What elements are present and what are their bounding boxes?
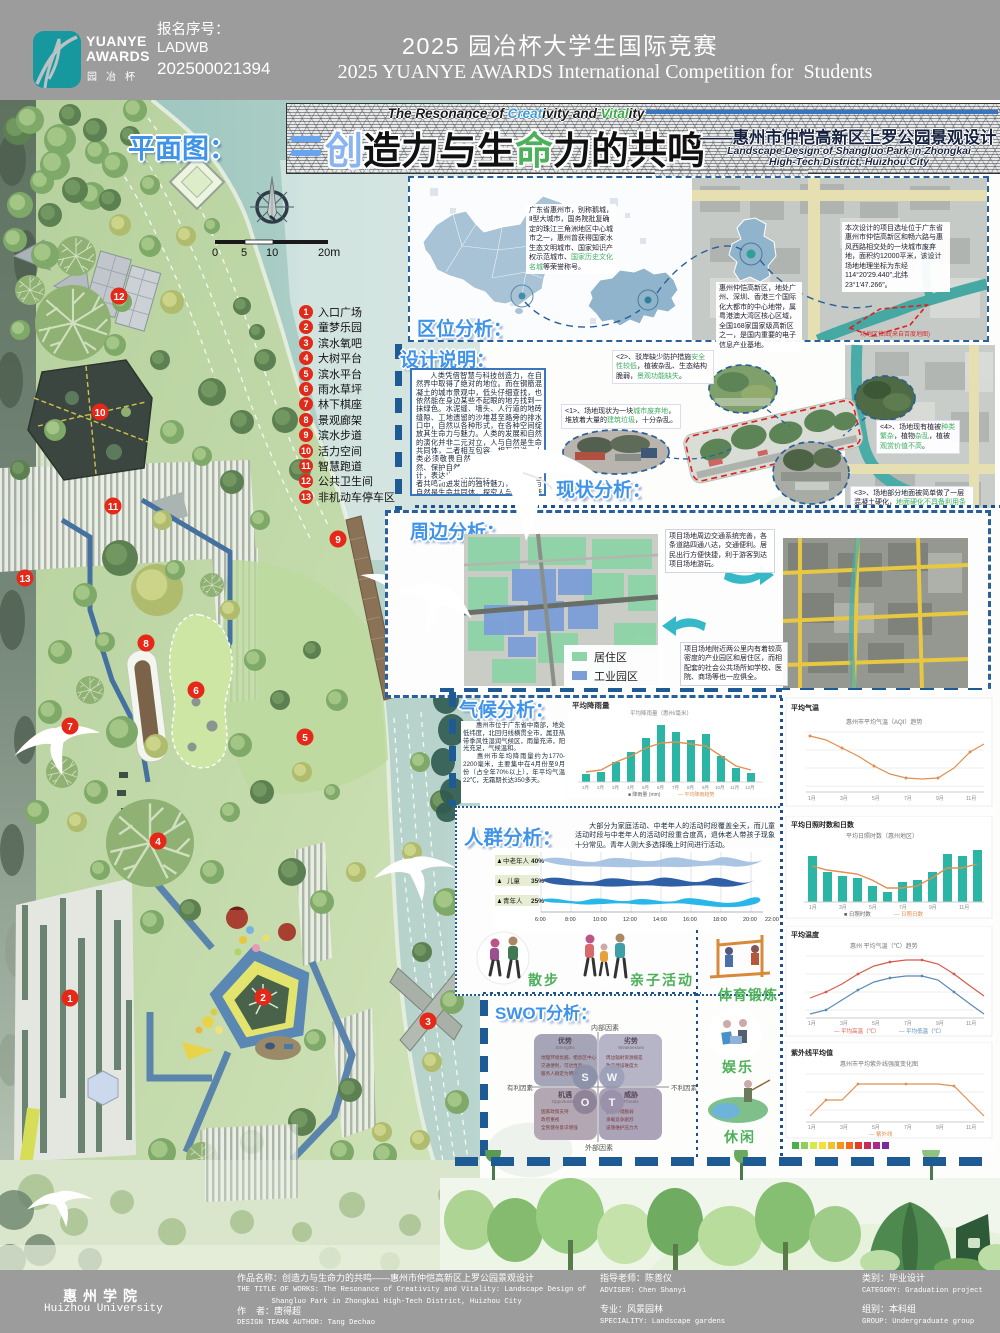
svg-text:平均日照时数（惠州地区）: 平均日照时数（惠州地区） <box>846 832 918 840</box>
svg-text:5: 5 <box>303 369 308 379</box>
svg-text:平均日照时数和日数: 平均日照时数和日数 <box>791 820 855 829</box>
svg-text:Weaknesses: Weaknesses <box>618 1045 644 1050</box>
svg-text:平均气温: 平均气温 <box>791 703 819 712</box>
svg-text:2: 2 <box>303 322 308 332</box>
svg-text:W: W <box>607 1072 618 1084</box>
svg-text:♟: ♟ <box>497 898 502 905</box>
svg-text:散步: 散步 <box>528 972 560 988</box>
svg-text:7: 7 <box>303 399 308 409</box>
svg-text:5: 5 <box>302 733 308 744</box>
svg-text:8: 8 <box>303 415 308 425</box>
svg-text:3月: 3月 <box>840 1021 848 1027</box>
svg-text:— 平均高温（℃）: — 平均高温（℃） <box>834 1027 880 1035</box>
svg-text:平均降雨量（惠州/毫米）: 平均降雨量（惠州/毫米） <box>630 709 692 717</box>
svg-text:7: 7 <box>67 722 73 733</box>
svg-text:平均温度: 平均温度 <box>791 930 820 939</box>
svg-text:7月: 7月 <box>904 1125 912 1131</box>
svg-text:承载竞争剧烈: 承载竞争剧烈 <box>606 1116 634 1123</box>
svg-text:5月: 5月 <box>872 796 880 802</box>
svg-text:11月: 11月 <box>966 1021 976 1027</box>
svg-text:优势: 优势 <box>558 1036 572 1045</box>
svg-text:休闲: 休闲 <box>723 1129 756 1145</box>
svg-text:亲子活动: 亲子活动 <box>630 972 694 988</box>
svg-text:9月: 9月 <box>936 796 944 802</box>
svg-text:机遇: 机遇 <box>558 1090 572 1099</box>
svg-text:中老年人: 中老年人 <box>503 856 530 865</box>
svg-text:— 平均降雨趋势: — 平均降雨趋势 <box>678 791 714 798</box>
svg-text:场地区位图(来自百度地图): 场地区位图(来自百度地图) <box>860 330 930 338</box>
svg-text:林下棋座: 林下棋座 <box>318 397 362 411</box>
svg-text:非机动车停车区: 非机动车停车区 <box>318 490 395 504</box>
svg-text:1: 1 <box>67 994 73 1005</box>
svg-text:有利因素: 有利因素 <box>507 1083 534 1092</box>
svg-text:40%: 40% <box>531 858 544 865</box>
svg-text:滨水步道: 滨水步道 <box>318 428 362 442</box>
svg-text:公共卫生间: 公共卫生间 <box>318 474 373 488</box>
svg-text:12: 12 <box>301 476 311 486</box>
svg-text:童梦乐园: 童梦乐园 <box>318 320 362 334</box>
svg-text:惠州市平均气温（AQI）趋势: 惠州市平均气温（AQI）趋势 <box>846 718 922 726</box>
svg-text:周边辐射资源援是: 周边辐射资源援是 <box>606 1054 643 1061</box>
svg-text:地理环境优越、栖息区中心: 地理环境优越、栖息区中心 <box>541 1054 597 1061</box>
svg-text:Strengths: Strengths <box>555 1045 575 1050</box>
svg-text:6: 6 <box>193 686 199 697</box>
svg-text:3月: 3月 <box>840 796 848 802</box>
svg-text:12:00: 12:00 <box>623 917 637 923</box>
svg-text:居住区: 居住区 <box>594 650 627 664</box>
svg-text:10: 10 <box>94 408 106 419</box>
svg-text:5月: 5月 <box>872 1125 880 1131</box>
svg-text:7月: 7月 <box>904 1021 912 1027</box>
svg-text:10: 10 <box>266 247 278 259</box>
svg-text:雨水草坪: 雨水草坪 <box>318 383 362 396</box>
svg-text:大树平台: 大树平台 <box>318 351 362 365</box>
svg-text:1月: 1月 <box>809 905 817 911</box>
svg-text:12: 12 <box>113 292 125 303</box>
svg-text:惠州市平均紫外线强度变化图: 惠州市平均紫外线强度变化图 <box>840 1060 918 1068</box>
svg-text:平均降雨量: 平均降雨量 <box>572 700 610 710</box>
svg-text:16:00: 16:00 <box>683 917 697 923</box>
svg-text:体育锻炼: 体育锻炼 <box>718 987 778 1003</box>
svg-text:11月: 11月 <box>959 905 969 911</box>
svg-text:11月: 11月 <box>966 1125 976 1131</box>
svg-text:不利因素: 不利因素 <box>671 1083 698 1092</box>
svg-text:6:00: 6:00 <box>535 917 546 923</box>
svg-text:0: 0 <box>212 247 218 259</box>
svg-text:11: 11 <box>108 502 119 513</box>
svg-text:4: 4 <box>155 837 161 848</box>
svg-text:设施维护压力大: 设施维护压力大 <box>606 1124 639 1131</box>
svg-text:青年人: 青年人 <box>503 896 523 905</box>
svg-text:9月: 9月 <box>929 905 937 911</box>
svg-text:20m: 20m <box>318 245 340 259</box>
svg-text:14:00: 14:00 <box>653 917 667 923</box>
svg-text:景观廊架: 景观廊架 <box>318 413 362 427</box>
svg-text:工业园区: 工业园区 <box>594 670 638 683</box>
svg-text:智慧跑道: 智慧跑道 <box>318 459 362 473</box>
svg-text:2: 2 <box>260 993 266 1004</box>
svg-text:♟: ♟ <box>497 858 502 865</box>
svg-text:— 平均低温（℃）: — 平均低温（℃） <box>899 1027 945 1035</box>
svg-text:5: 5 <box>241 247 247 259</box>
svg-text:11: 11 <box>301 461 311 471</box>
svg-text:— 紫外线: — 紫外线 <box>869 1130 893 1138</box>
svg-text:Threats: Threats <box>623 1099 639 1104</box>
svg-text:5月: 5月 <box>872 1021 880 1027</box>
svg-text:13: 13 <box>19 574 31 585</box>
svg-text:10: 10 <box>301 446 311 456</box>
svg-text:滨水平台: 滨水平台 <box>318 367 362 381</box>
svg-text:滨水氧吧: 滨水氧吧 <box>318 336 362 350</box>
svg-text:9: 9 <box>303 430 308 440</box>
svg-text:全民健身意识增强: 全民健身意识增强 <box>541 1124 578 1131</box>
svg-text:娱乐: 娱乐 <box>722 1059 754 1075</box>
svg-text:紫外线平均值: 紫外线平均值 <box>791 1048 833 1057</box>
svg-text:内部因素: 内部因素 <box>591 1023 619 1032</box>
svg-text:13: 13 <box>301 492 311 502</box>
svg-text:■ 日照时数: ■ 日照时数 <box>844 910 871 918</box>
svg-text:9月: 9月 <box>936 1021 944 1027</box>
svg-text:1月: 1月 <box>808 1021 816 1027</box>
svg-text:— 日照日数: — 日照日数 <box>894 910 924 918</box>
svg-text:8:00: 8:00 <box>565 917 576 923</box>
svg-text:10:00: 10:00 <box>593 917 607 923</box>
svg-text:S: S <box>581 1072 588 1084</box>
svg-text:1月: 1月 <box>808 1125 816 1131</box>
svg-text:T: T <box>609 1097 616 1109</box>
svg-text:威胁: 威胁 <box>624 1090 638 1099</box>
svg-text:11月: 11月 <box>966 796 976 802</box>
svg-text:入口广场: 入口广场 <box>318 305 362 319</box>
svg-text:8: 8 <box>143 639 149 650</box>
svg-text:儿童: 儿童 <box>507 876 521 885</box>
svg-text:惠州 平均气温（℃）趋势: 惠州 平均气温（℃）趋势 <box>850 942 918 950</box>
svg-text:9: 9 <box>335 535 341 546</box>
svg-text:1: 1 <box>303 307 308 317</box>
svg-text:■ 降雨量 (mm): ■ 降雨量 (mm) <box>628 791 661 798</box>
svg-text:3月: 3月 <box>839 905 847 911</box>
svg-text:25%: 25% <box>531 898 544 905</box>
svg-text:7月: 7月 <box>899 905 907 911</box>
svg-text:劣势: 劣势 <box>624 1036 638 1045</box>
svg-text:国家政策支持: 国家政策支持 <box>541 1108 569 1115</box>
svg-text:3: 3 <box>425 1017 431 1028</box>
svg-text:6: 6 <box>303 384 308 394</box>
svg-text:活力空间: 活力空间 <box>318 444 362 458</box>
svg-text:4: 4 <box>303 353 308 363</box>
svg-text:3: 3 <box>303 338 308 348</box>
svg-text:O: O <box>581 1097 590 1109</box>
svg-text:5月: 5月 <box>869 905 877 911</box>
svg-text:9月: 9月 <box>936 1125 944 1131</box>
svg-text:政府重视: 政府重视 <box>541 1116 560 1123</box>
svg-text:35%: 35% <box>531 878 544 885</box>
svg-text:1月: 1月 <box>808 796 816 802</box>
svg-text:3月: 3月 <box>840 1125 848 1131</box>
svg-text:7月: 7月 <box>904 796 912 802</box>
svg-text:♟: ♟ <box>497 878 502 885</box>
